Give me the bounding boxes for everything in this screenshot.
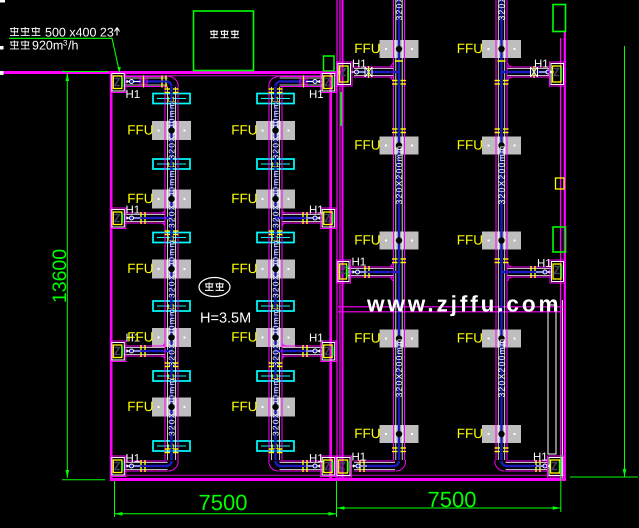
svg-text:H1: H1 [309,453,324,465]
svg-text:L1: L1 [272,96,280,103]
svg-text:www.zjffu.com: www.zjffu.com [366,292,561,317]
svg-text:L1: L1 [168,374,176,381]
svg-text:320X200mm: 320X200mm [394,338,404,398]
svg-text:L1: L1 [168,96,176,103]
svg-text:FFU: FFU [457,138,483,153]
svg-text:H1: H1 [126,89,141,101]
svg-text:FFU: FFU [231,261,257,276]
svg-text:L1: L1 [168,235,176,242]
svg-text:FFU: FFU [457,233,483,248]
svg-text:FFU: FFU [354,233,380,248]
svg-text:FFU: FFU [127,123,153,138]
svg-text:7500: 7500 [428,487,477,512]
svg-text:H1: H1 [126,453,141,465]
svg-text:FFU: FFU [231,191,257,206]
svg-text:/h: /h [68,39,78,53]
svg-text:FFU: FFU [457,331,483,346]
svg-text:500 x400 23: 500 x400 23 [45,26,114,40]
svg-text:FFU: FFU [354,138,380,153]
svg-text:FFU: FFU [127,191,153,206]
svg-text:7500: 7500 [199,490,248,515]
svg-text:H1: H1 [309,205,324,217]
svg-text:H1: H1 [533,452,548,464]
svg-text:320X200mm: 320X200mm [497,338,507,398]
svg-text:320X200mm: 320X200mm [394,145,404,205]
svg-text:L1: L1 [272,162,280,169]
svg-text:H1: H1 [126,205,141,217]
svg-text:FFU: FFU [457,426,483,441]
svg-text:320X200mm: 320X200mm [394,0,404,21]
svg-text:H1: H1 [352,452,367,464]
svg-text:L1: L1 [272,235,280,242]
svg-text:320X200mm: 320X200mm [497,145,507,205]
svg-text:FFU: FFU [354,426,380,441]
svg-text:FFU: FFU [354,331,380,346]
svg-text:L1: L1 [272,444,280,451]
svg-text:H1: H1 [309,333,324,345]
svg-text:L1: L1 [272,304,280,311]
svg-text:FFU: FFU [231,330,257,345]
svg-text:13600: 13600 [49,249,71,303]
svg-text:L1: L1 [168,304,176,311]
svg-text:L1: L1 [168,162,176,169]
svg-text:FFU: FFU [231,123,257,138]
svg-text:H1: H1 [309,89,324,101]
svg-text:L1: L1 [168,444,176,451]
svg-text:320X200mm: 320X200mm [497,0,507,21]
svg-text:FFU: FFU [354,41,380,56]
svg-text:L1: L1 [272,374,280,381]
svg-text:H=3.5M: H=3.5M [200,311,251,327]
svg-text:FFU: FFU [127,399,153,414]
svg-text:H1: H1 [534,59,549,71]
svg-text:FFU: FFU [127,330,153,345]
svg-text:H1: H1 [352,257,367,269]
svg-text:H1: H1 [537,258,552,270]
svg-text:920m: 920m [32,39,63,53]
svg-text:FFU: FFU [457,41,483,56]
svg-text:H1: H1 [352,59,367,71]
svg-text:FFU: FFU [231,399,257,414]
svg-text:FFU: FFU [127,261,153,276]
